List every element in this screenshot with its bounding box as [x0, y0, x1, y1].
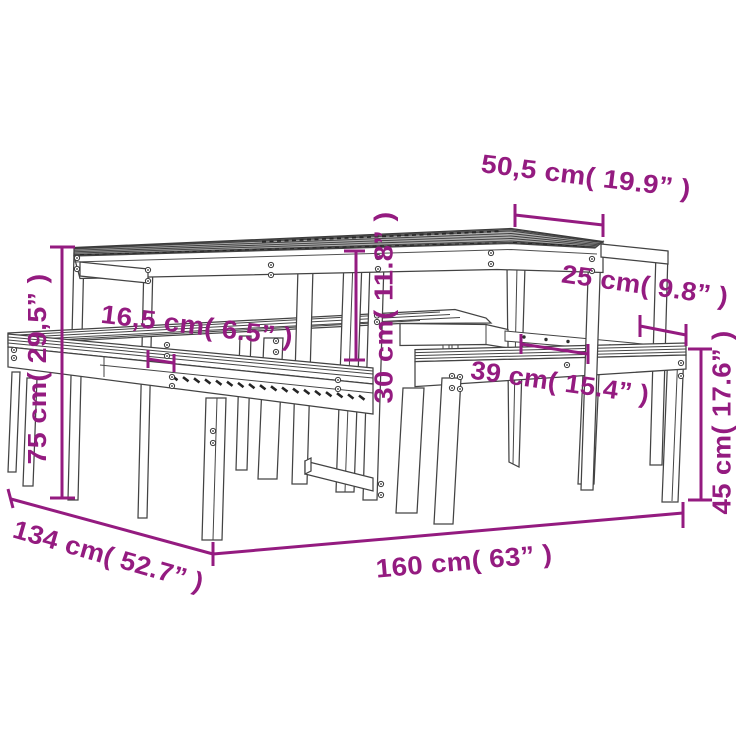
svg-text:45 cm( 17.6” ): 45 cm( 17.6” ) [707, 331, 737, 515]
svg-text:75 cm( 29,5” ): 75 cm( 29,5” ) [22, 274, 52, 465]
svg-text:30 cm( 11.8” ): 30 cm( 11.8” ) [369, 212, 399, 404]
